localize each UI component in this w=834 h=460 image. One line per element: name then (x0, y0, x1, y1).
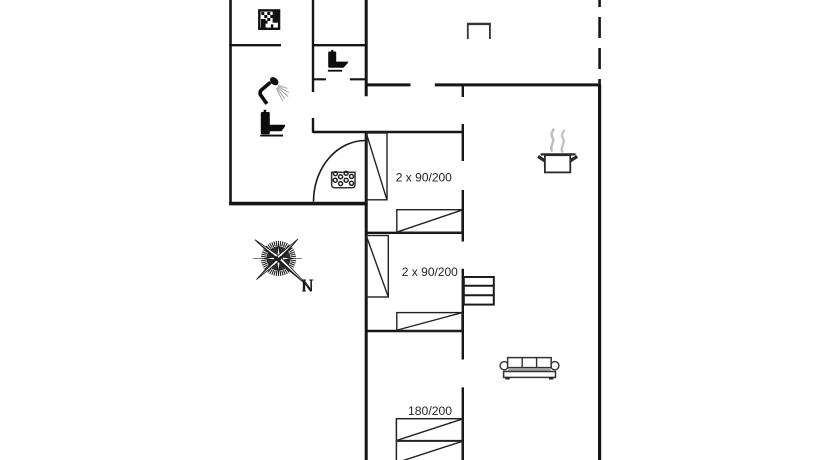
svg-text:2 x 90/200: 2 x 90/200 (396, 170, 452, 184)
svg-text:180/200: 180/200 (408, 404, 452, 418)
svg-text:2 x 90/200: 2 x 90/200 (402, 265, 458, 279)
